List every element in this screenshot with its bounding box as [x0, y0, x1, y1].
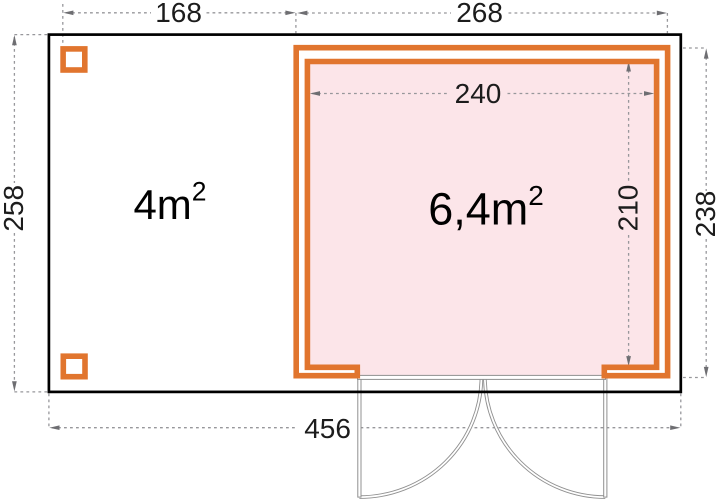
svg-text:258: 258 [0, 185, 29, 232]
svg-text:240: 240 [455, 78, 502, 109]
svg-text:6,4m2: 6,4m2 [428, 180, 544, 235]
svg-text:456: 456 [304, 413, 351, 444]
svg-text:238: 238 [690, 191, 721, 238]
svg-text:210: 210 [612, 185, 643, 232]
svg-text:268: 268 [456, 0, 503, 28]
svg-text:168: 168 [155, 0, 202, 28]
